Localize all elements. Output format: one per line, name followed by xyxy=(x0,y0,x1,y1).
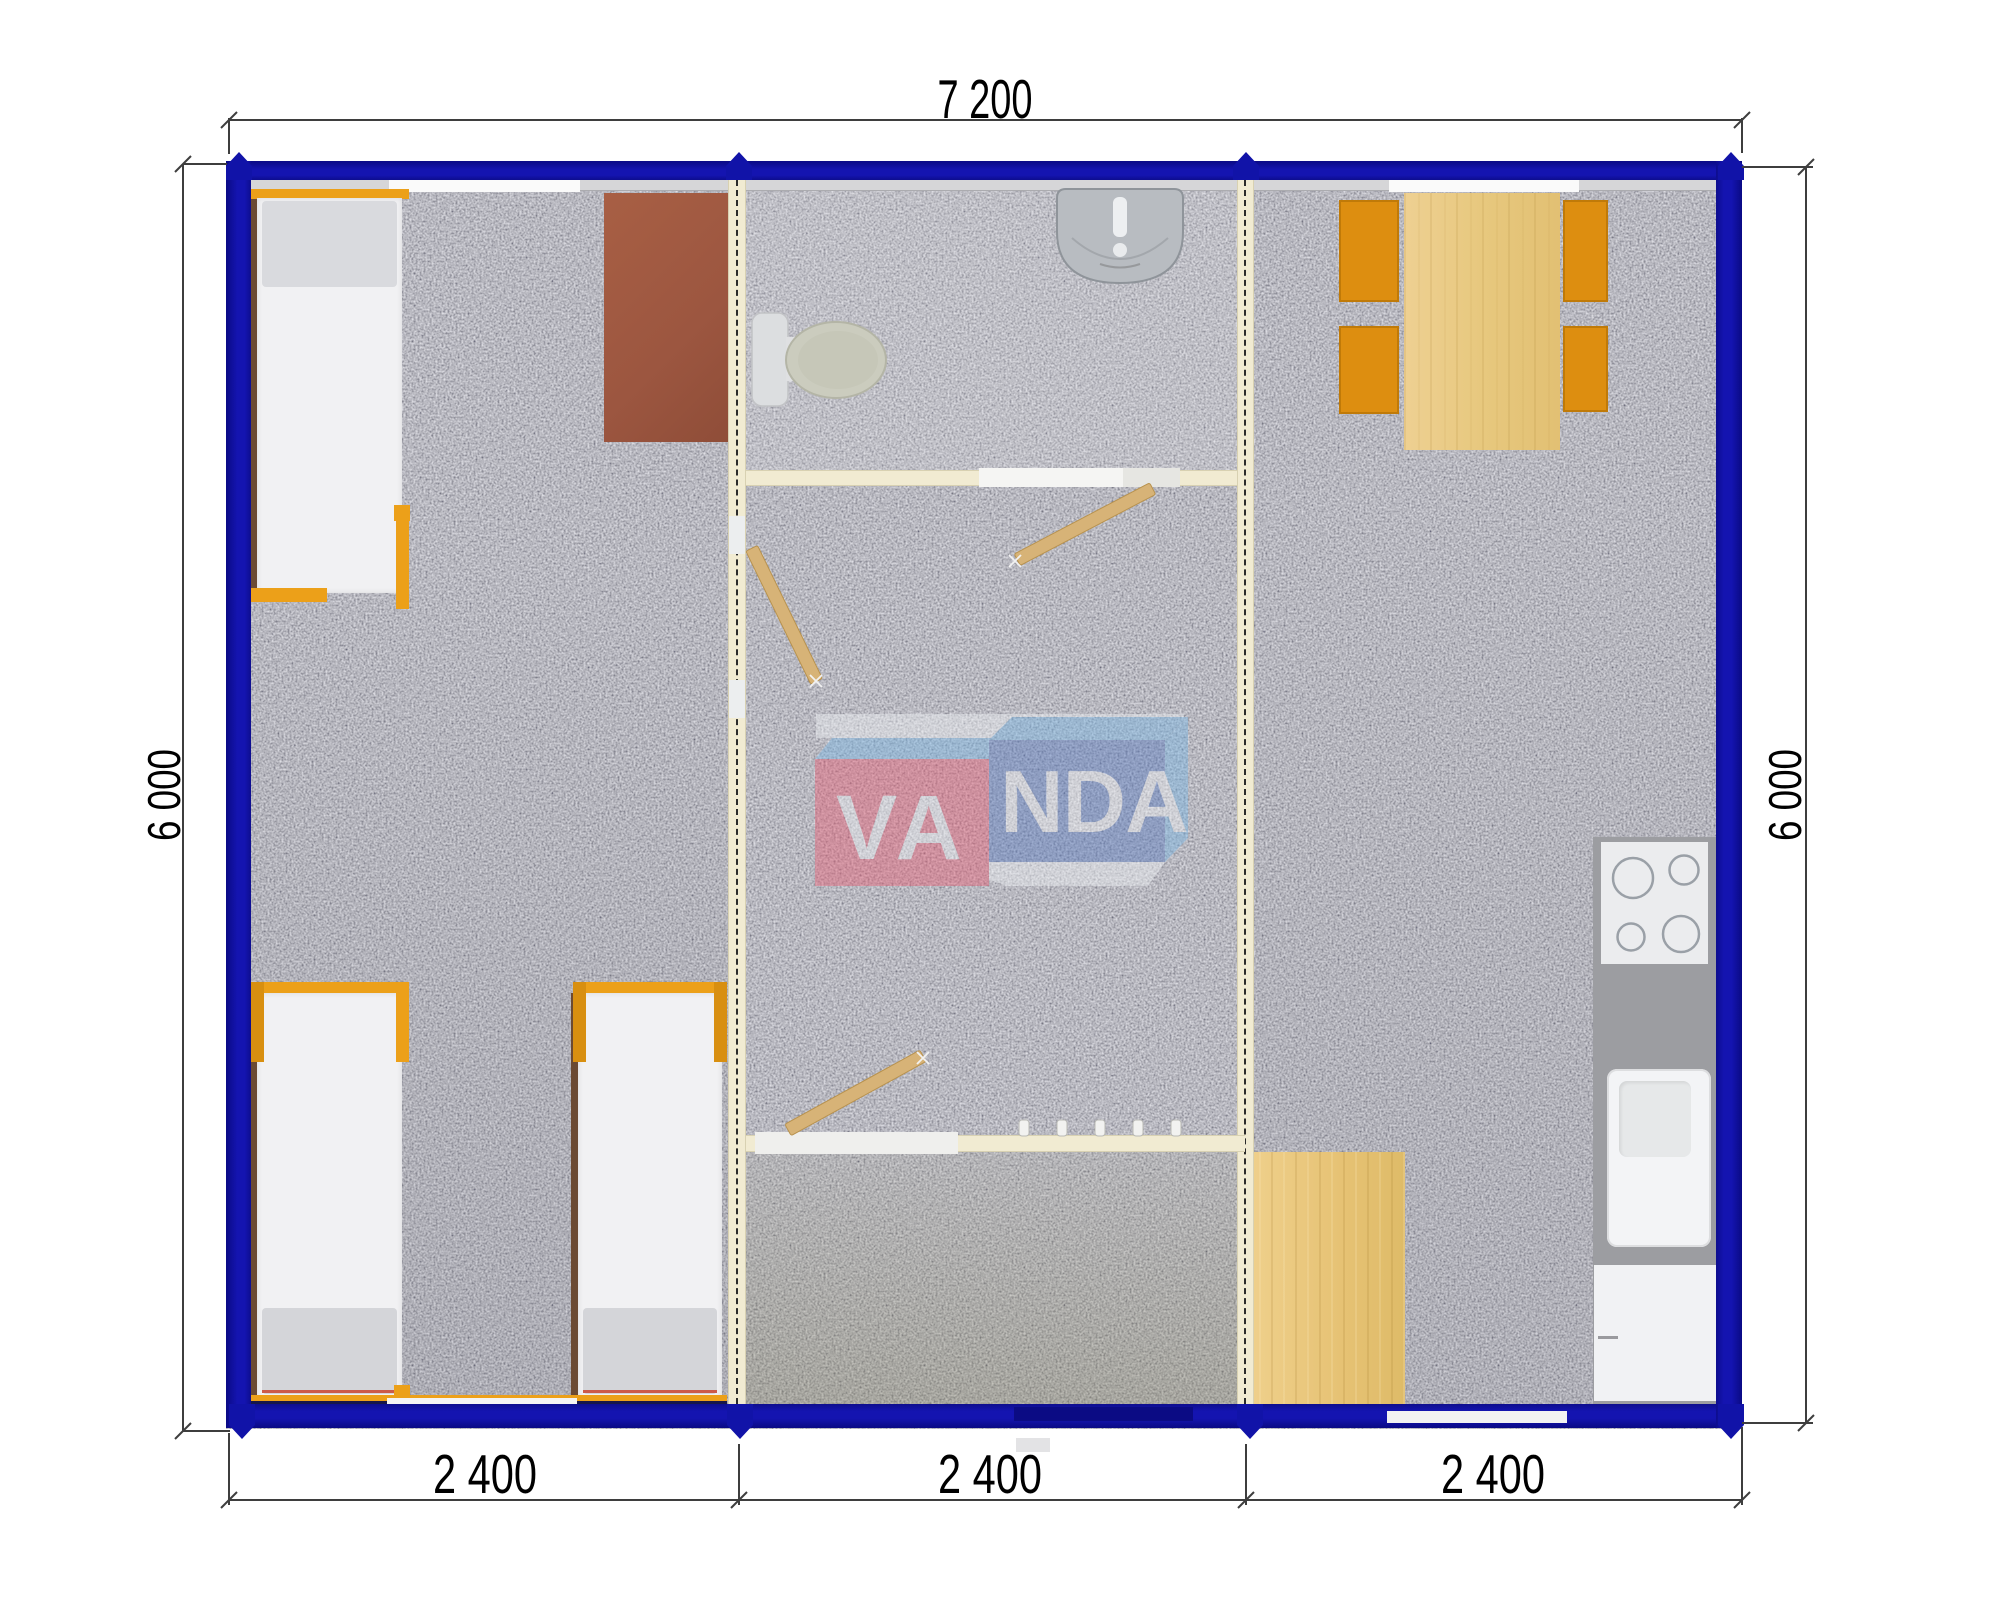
svg-text:2 400: 2 400 xyxy=(1441,1443,1545,1505)
svg-text:2 400: 2 400 xyxy=(433,1443,537,1505)
svg-text:2 400: 2 400 xyxy=(938,1443,1042,1505)
svg-text:7 200: 7 200 xyxy=(938,68,1033,130)
svg-text:6 000: 6 000 xyxy=(1759,749,1811,841)
svg-text:6 000: 6 000 xyxy=(138,749,190,841)
